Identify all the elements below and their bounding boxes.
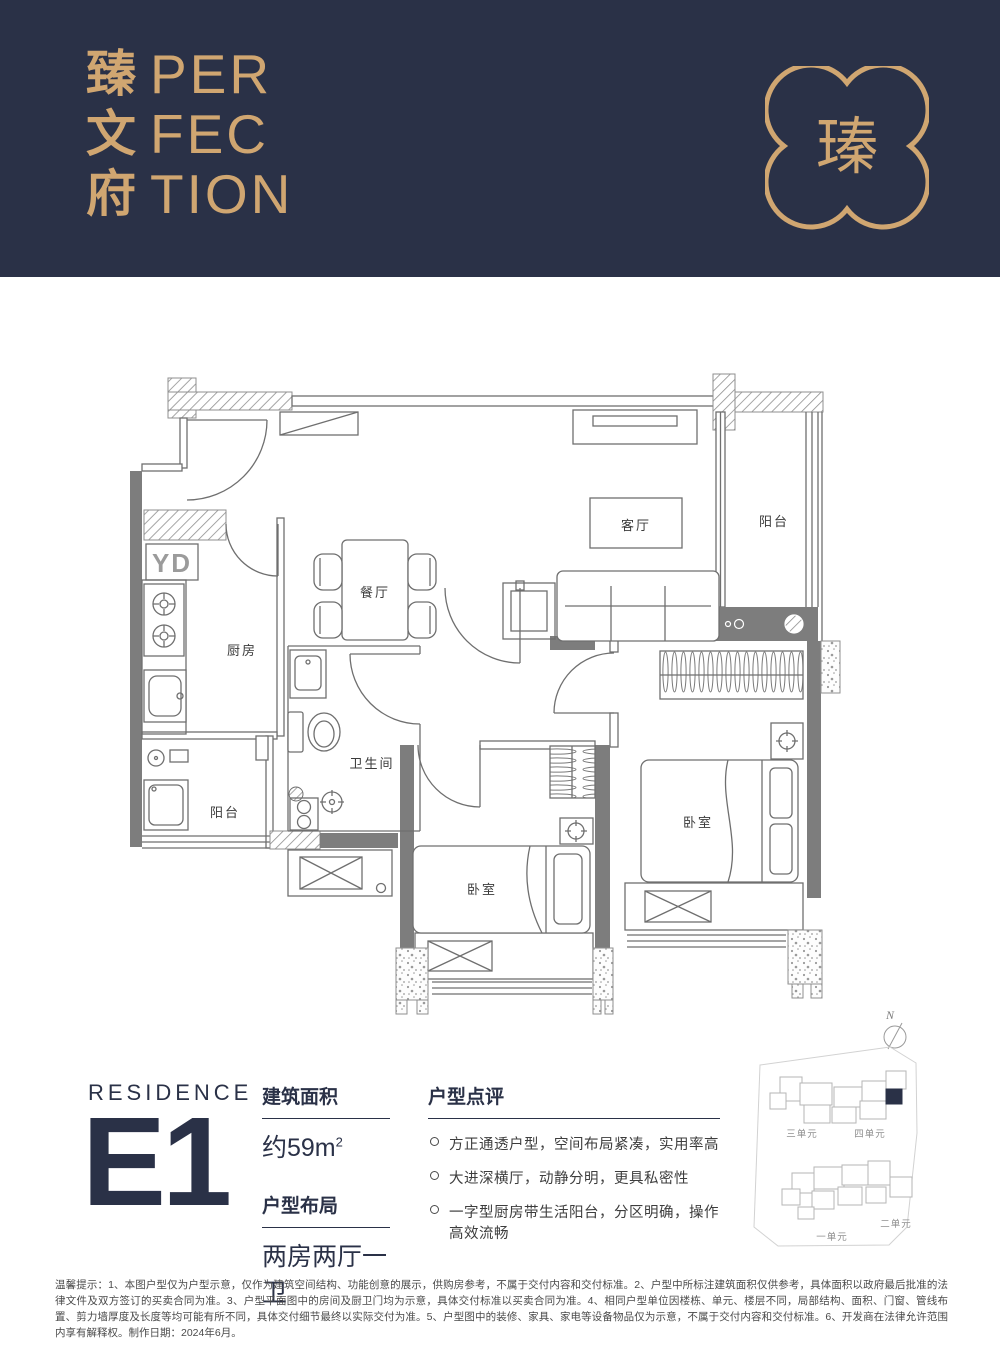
- disclaimer-text: 温馨提示：1、本图户型仅为户型示意，仅作为建筑空间结构、功能创意的展示，供购房参…: [55, 1277, 948, 1342]
- bedroom-2-furniture: [641, 651, 803, 882]
- spec-area-title: 建筑面积: [262, 1082, 390, 1119]
- room-label-dining: 餐厅: [360, 585, 390, 600]
- unit-label-1: 一单元: [816, 1231, 848, 1243]
- room-label-bedroom-1: 卧室: [467, 882, 497, 897]
- review-bullet-1-text: 方正通透户型，空间布局紧凑，实用率高: [449, 1133, 719, 1154]
- review-list: 方正通透户型，空间布局紧凑，实用率高 大进深横厅，动静分明，更具私密性 一字型厨…: [428, 1133, 720, 1243]
- room-label-balcony-main: 阳台: [759, 514, 789, 529]
- spec-column: 建筑面积 约59m2 户型布局 两房两厅一卫: [262, 1082, 390, 1309]
- spec-area-number: 约59m: [262, 1134, 336, 1162]
- review-bullet-2-text: 大进深横厅，动静分明，更具私密性: [449, 1167, 689, 1188]
- brand-en-line-1: PER: [150, 44, 293, 104]
- review-column: 户型点评 方正通透户型，空间布局紧凑，实用率高 大进深横厅，动静分明，更具私密性…: [428, 1082, 720, 1256]
- header-band: 臻 文 府 PER FEC TION 瑧: [0, 0, 1000, 277]
- kitchen-fixtures: YD: [142, 544, 198, 734]
- review-bullet-2: 大进深横厅，动静分明，更具私密性: [428, 1167, 720, 1188]
- spec-area-sup: 2: [336, 1135, 343, 1150]
- brand-char-2: 文: [84, 104, 138, 164]
- review-bullet-3-text: 一字型厨房带生活阳台，分区明确，操作高效流畅: [449, 1201, 720, 1243]
- unit-label-2: 二单元: [880, 1218, 912, 1230]
- unit-code: E1: [82, 1096, 228, 1228]
- brand-en-line-3: TION: [150, 164, 293, 224]
- appliance-label: YD: [152, 548, 192, 578]
- review-bullet-1: 方正通透户型，空间布局紧凑，实用率高: [428, 1133, 720, 1154]
- bullet-circle-icon: [430, 1171, 439, 1180]
- brand-chinese: 臻 文 府: [84, 44, 138, 224]
- bullet-circle-icon: [430, 1205, 439, 1214]
- living-furniture: [503, 410, 719, 641]
- room-label-bathroom: 卫生间: [349, 756, 394, 771]
- review-title: 户型点评: [428, 1082, 720, 1119]
- spec-area: 建筑面积 约59m2: [262, 1082, 390, 1164]
- bedroom-1-furniture: [413, 746, 595, 933]
- brand-seal-icon: 瑧: [765, 66, 929, 230]
- bullet-circle-icon: [430, 1137, 439, 1146]
- room-label-balcony-service: 阳台: [210, 805, 240, 820]
- room-label-kitchen: 厨房: [227, 643, 257, 658]
- brand-en-line-2: FEC: [150, 104, 293, 164]
- room-label-bedroom-2: 卧室: [683, 815, 713, 830]
- brand-char-1: 臻: [84, 44, 138, 104]
- north-label: N: [885, 1008, 895, 1022]
- room-label-living: 客厅: [621, 518, 651, 533]
- spec-layout-title: 户型布局: [262, 1191, 390, 1228]
- highlighted-unit: [886, 1089, 902, 1104]
- brand-char-3: 府: [84, 164, 138, 224]
- service-balcony-fixtures: [144, 750, 188, 830]
- unit-label-4: 四单元: [854, 1128, 886, 1140]
- bathroom-fixtures: [288, 650, 344, 830]
- site-minimap: N 三单元 四单元 一单元 二单元: [740, 1005, 995, 1260]
- spec-area-value: 约59m2: [262, 1128, 390, 1164]
- building-cluster-bottom: [782, 1161, 912, 1219]
- floor-plan: YD: [130, 360, 850, 1020]
- brand-english: PER FEC TION: [150, 44, 293, 224]
- seal-glyph: 瑧: [816, 113, 878, 182]
- review-bullet-3: 一字型厨房带生活阳台，分区明确，操作高效流畅: [428, 1201, 720, 1243]
- compass-icon: N: [884, 1008, 906, 1049]
- unit-label-3: 三单元: [786, 1128, 818, 1140]
